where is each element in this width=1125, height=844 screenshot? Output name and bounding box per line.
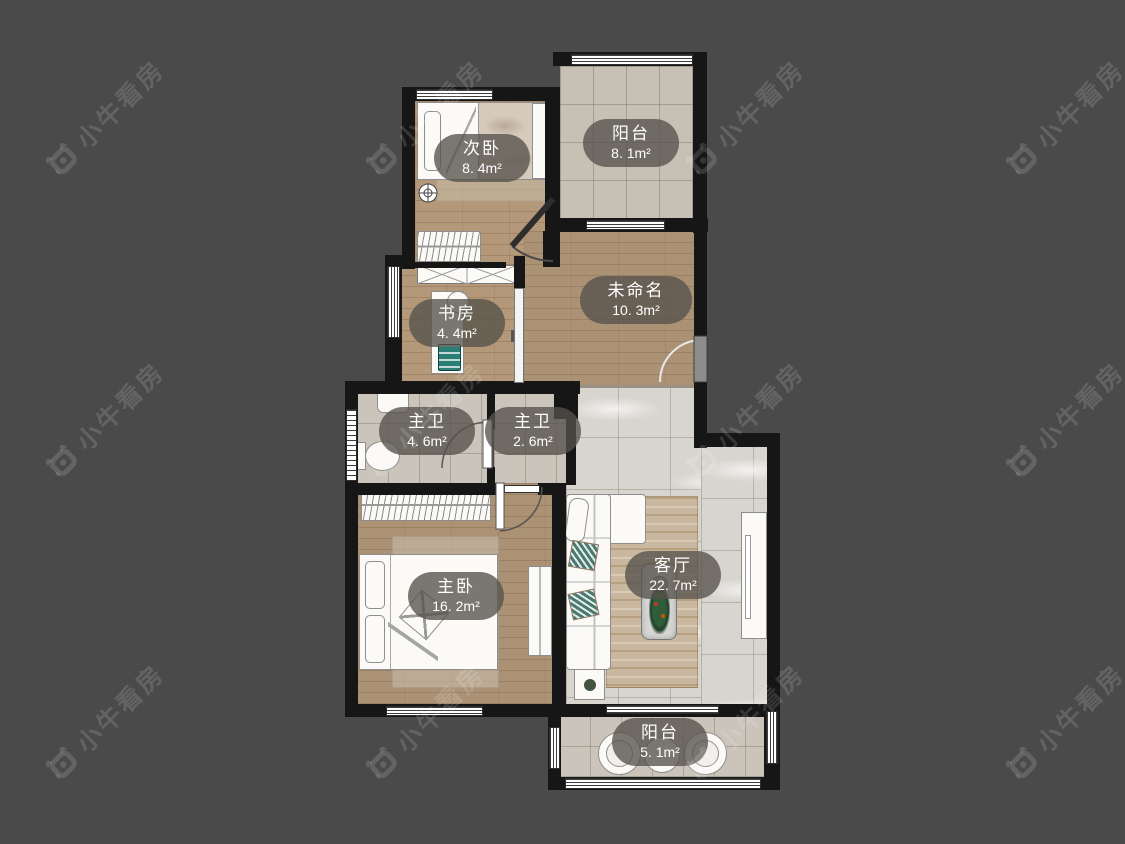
room-label-balcony-bottom: 阳台 5. 1m²: [612, 718, 708, 766]
room-area: 8. 1m²: [611, 145, 651, 162]
room-area: 5. 1m²: [640, 744, 680, 761]
watermark: 小牛看房: [998, 655, 1125, 789]
room-area: 16. 2m²: [432, 598, 479, 615]
room-label-living-room: 客厅 22. 7m²: [625, 551, 721, 599]
window: [565, 778, 761, 789]
room-area: 8. 4m²: [462, 160, 502, 177]
room-label-master-bedroom: 主卧 16. 2m²: [408, 572, 504, 620]
watermark: 小牛看房: [998, 51, 1125, 185]
room-name: 阳台: [641, 723, 679, 743]
window: [549, 727, 560, 769]
room-name: 主卫: [408, 412, 446, 432]
sliding-door-sill: [586, 220, 665, 230]
room-label-balcony-top: 阳台 8. 1m²: [583, 119, 679, 167]
watermark: 小牛看房: [38, 51, 172, 185]
berry: [654, 602, 658, 606]
watermark-text: 小牛看房: [707, 51, 812, 156]
watermark-text: 小牛看房: [67, 353, 172, 458]
room-name: 未命名: [608, 281, 665, 301]
wall: [345, 381, 580, 394]
window: [416, 89, 493, 100]
watermark-text: 小牛看房: [1027, 353, 1125, 458]
room-label-second-bedroom: 次卧 8. 4m²: [434, 134, 530, 182]
bull-logo-icon: [39, 740, 87, 788]
watermark-text: 小牛看房: [1027, 51, 1125, 156]
wall: [552, 483, 566, 708]
room-name: 主卫: [514, 412, 552, 432]
bull-logo-icon: [39, 438, 87, 486]
room-area: 4. 4m²: [437, 325, 477, 342]
room-area: 4. 6m²: [407, 433, 447, 450]
window: [386, 706, 483, 716]
room-label-bathroom-b: 主卫 2. 6m²: [485, 407, 581, 455]
door-handle: [511, 330, 514, 342]
wall: [402, 262, 506, 268]
room-area: 10. 3m²: [612, 302, 659, 319]
room-name: 阳台: [612, 124, 650, 144]
bay-window: [741, 512, 767, 639]
wall: [767, 433, 780, 718]
window: [766, 711, 778, 764]
watermark-text: 小牛看房: [67, 51, 172, 156]
pillow: [365, 615, 385, 663]
wall: [357, 483, 498, 495]
bull-logo-icon: [359, 136, 407, 184]
side-table: [574, 669, 605, 700]
wall: [694, 218, 707, 338]
glass-door-study: [514, 288, 524, 383]
bull-logo-icon: [999, 740, 1047, 788]
bull-logo-icon: [359, 740, 407, 788]
pillow: [365, 561, 385, 609]
watermark: 小牛看房: [38, 655, 172, 789]
berry: [661, 614, 665, 618]
sliding-door-sill: [606, 705, 719, 714]
window: [387, 266, 400, 338]
watermark-text: 小牛看房: [67, 655, 172, 760]
wall: [693, 52, 707, 233]
room-name: 书房: [438, 304, 476, 324]
flower-pot: [584, 679, 596, 691]
room-label-unnamed: 未命名 10. 3m²: [580, 276, 692, 324]
room-label-bathroom-a: 主卫 4. 6m²: [379, 407, 475, 455]
window: [571, 54, 693, 65]
room-label-study: 书房 4. 4m²: [409, 299, 505, 347]
bull-logo-icon: [39, 136, 87, 184]
wall: [402, 87, 415, 269]
dresser-master: [528, 566, 552, 656]
window: [346, 409, 357, 481]
room-area: 2. 6m²: [513, 433, 553, 450]
bay-window-inner: [745, 535, 751, 619]
door-entry: [656, 334, 708, 386]
laptop: [438, 344, 461, 371]
bull-logo-icon: [999, 136, 1047, 184]
bull-logo-icon: [999, 438, 1047, 486]
door-corridor: [495, 188, 561, 268]
watermark: 小牛看房: [998, 353, 1125, 487]
room-area: 22. 7m²: [649, 577, 696, 594]
watermark-text: 小牛看房: [1027, 655, 1125, 760]
ceiling-fan-icon: [417, 182, 439, 204]
watermark: 小牛看房: [38, 353, 172, 487]
ottoman: [568, 540, 599, 571]
wardrobe-corridor: [417, 231, 481, 262]
ottoman: [567, 588, 599, 620]
door-bathroom-b: [494, 483, 544, 533]
room-name: 主卧: [437, 577, 475, 597]
room-name: 次卧: [463, 139, 501, 159]
room-name: 客厅: [654, 556, 692, 576]
floor-plan: 次卧 8. 4m² 阳台 8. 1m² 未命名 10. 3m² 书房 4. 4m…: [0, 0, 1125, 844]
